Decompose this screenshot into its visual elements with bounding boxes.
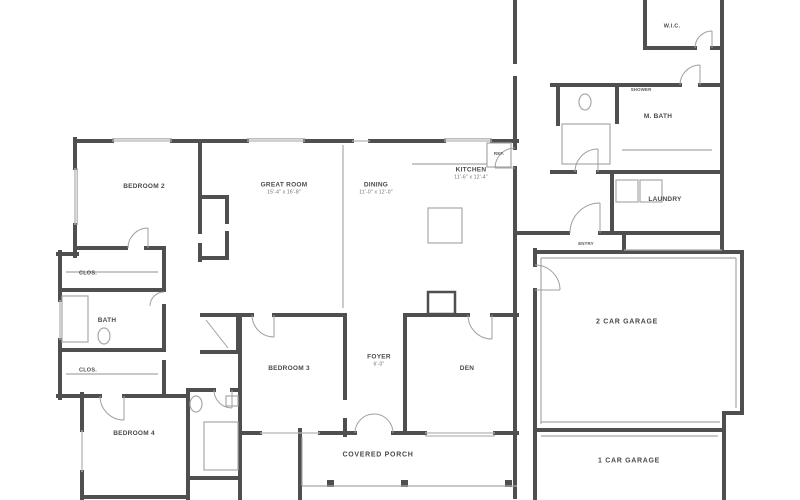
room-dimensions: 11'-6" x 12'-4" bbox=[454, 175, 487, 182]
room-label-text: BEDROOM 4 bbox=[113, 430, 155, 437]
room-label-great-room: GREAT ROOM 15'-4" x 16'-8" bbox=[261, 182, 308, 197]
room-label-closet-upper: CLOS. bbox=[79, 270, 97, 277]
room-label-master-bath: M. BATH bbox=[644, 113, 672, 121]
room-label-text: GREAT ROOM bbox=[261, 182, 308, 189]
toilet-fixture bbox=[98, 328, 110, 344]
room-label-garage-1-car: 1 CAR GARAGE bbox=[598, 456, 660, 465]
room-label-text: BEDROOM 3 bbox=[268, 365, 310, 372]
room-label-text: ENTRY bbox=[578, 241, 594, 246]
room-label-text: 2 CAR GARAGE bbox=[596, 318, 658, 325]
bathtub-fixture bbox=[62, 296, 88, 342]
room-label-kitchen: KITCHEN 11'-6" x 12'-4" bbox=[454, 167, 487, 182]
floor-plan-canvas: BEDROOM 2 GREAT ROOM 15'-4" x 16'-8" DIN… bbox=[0, 0, 800, 500]
room-label-bath-2: BATH bbox=[98, 317, 117, 325]
room-label-text: COVERED PORCH bbox=[343, 451, 414, 458]
room-label-text: REF. bbox=[494, 151, 504, 156]
room-label-text: 1 CAR GARAGE bbox=[598, 457, 660, 464]
label-entry: ENTRY bbox=[578, 241, 594, 247]
room-dimensions: 11'-0" x 12'-0" bbox=[359, 190, 392, 197]
room-label-laundry: LAUNDRY bbox=[648, 196, 681, 204]
kitchen-island bbox=[428, 208, 462, 243]
room-dimensions: 15'-4" x 16'-8" bbox=[261, 190, 308, 197]
room-label-text: CLOS. bbox=[79, 270, 97, 276]
toilet-fixture bbox=[579, 94, 591, 110]
room-label-text: FOYER bbox=[367, 354, 391, 361]
washer-fixture bbox=[616, 180, 638, 202]
room-label-text: DEN bbox=[460, 365, 474, 372]
toilet-fixture bbox=[190, 396, 202, 412]
room-label-closet-lower: CLOS. bbox=[79, 367, 97, 374]
room-label-text: LAUNDRY bbox=[648, 196, 681, 203]
room-label-text: KITCHEN bbox=[456, 167, 487, 174]
room-label-text: BATH bbox=[98, 317, 117, 324]
room-label-text: BEDROOM 2 bbox=[123, 183, 165, 190]
room-label-dining: DINING 11'-0" x 12'-0" bbox=[359, 182, 392, 197]
room-label-text: M. BATH bbox=[644, 113, 672, 120]
room-label-bedroom-4: BEDROOM 4 bbox=[113, 430, 155, 438]
room-dimensions: 6'-0" bbox=[367, 362, 391, 369]
shower-fixture bbox=[562, 124, 610, 164]
room-label-foyer: FOYER 6'-0" bbox=[367, 354, 391, 369]
bathtub-fixture bbox=[204, 422, 238, 470]
room-label-garage-2-car: 2 CAR GARAGE bbox=[596, 317, 658, 326]
room-label-text: DINING bbox=[364, 182, 388, 189]
room-label-bedroom-2: BEDROOM 2 bbox=[123, 183, 165, 191]
room-label-text: SHOWER bbox=[631, 87, 652, 92]
room-label-bedroom-3: BEDROOM 3 bbox=[268, 365, 310, 373]
room-label-walk-in-closet: W.I.C. bbox=[664, 23, 680, 30]
label-refrigerator: REF. bbox=[494, 151, 504, 157]
floor-plan-image: BEDROOM 2 GREAT ROOM 15'-4" x 16'-8" DIN… bbox=[0, 0, 800, 500]
room-label-den: DEN bbox=[460, 365, 474, 373]
room-label-text: W.I.C. bbox=[664, 23, 680, 29]
room-label-text: CLOS. bbox=[79, 367, 97, 373]
label-shower: SHOWER bbox=[631, 87, 652, 93]
fireplace bbox=[428, 292, 455, 314]
room-label-covered-porch: COVERED PORCH bbox=[343, 450, 414, 459]
floor-plan-drawing bbox=[0, 0, 800, 500]
